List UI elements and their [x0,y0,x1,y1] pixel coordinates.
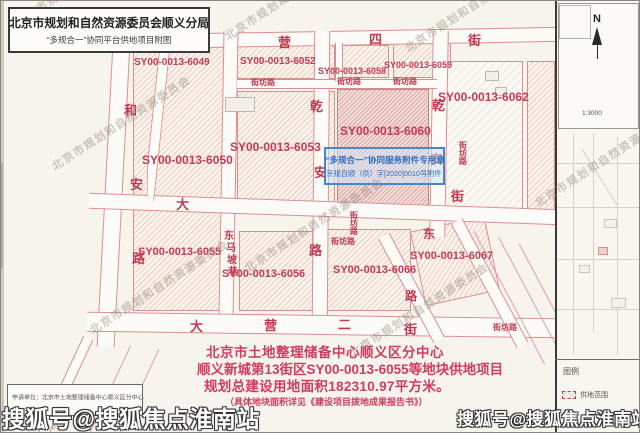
parcel-label: SY00-0013-6052 [240,57,316,67]
inset-line [557,259,640,260]
street-name-char: 营 [264,319,277,332]
map-image-root: 北京市规划和自然资源委员会顺义分局 “多规合一”协同平台供地项目附图 “多规合一… [0,0,640,433]
parcel-label: SY00-0013-6050 [142,154,233,166]
road-label: 街坊路 [458,141,466,165]
street-name-char: 大 [190,320,203,333]
north-arrow-icon [592,27,602,45]
street-name-char: 路 [309,244,322,257]
parcel-label: SY00-0013-6056 [222,269,305,280]
parcel-label: SY00-0013-6066 [333,265,416,276]
inset-box [611,298,626,308]
map-subtitle: “多规合一”协同平台供地项目附图 [47,34,172,46]
street-name-char: 坡 [227,256,237,266]
notes-line2: 顺义新城第13街区SY00-0013-6055等地块供地项目 [197,363,503,377]
parcel [437,61,523,213]
parcel-label: SY00-0013-6059 [384,61,452,70]
legend-divider [555,359,640,360]
building [225,97,255,112]
sohu-watermark-right: 搜狐号@搜狐焦点淮南站 [457,405,640,430]
street-name-char: 东 [423,228,435,240]
legend-supply-area-symbol [562,391,576,399]
street-name-char: 二 [338,318,351,331]
street-name-char: 四 [369,33,382,46]
scale-text: 1:3000 [582,110,602,117]
binding-edge-mark [1,163,3,268]
street-road [87,312,557,339]
parcel-label: SY00-0013-6062 [438,91,529,103]
street-name-char: 乾 [310,100,323,113]
north-label: N [593,13,601,25]
notes-line3: 规划总建设用地面积182310.97平方米。 [204,380,450,394]
legend-item-label: 供地范围 [580,390,608,400]
road-label: 街坊路 [337,78,361,86]
north-arrow-stem [597,45,598,59]
map-title: 北京市规划和自然资源委员会顺义分局 [9,14,209,31]
street-name-char: 安 [130,178,143,191]
notes-line1: 北京市土地整理储备中心顺义区分中心 [206,346,444,360]
street-name-char: 街 [468,34,481,47]
compass-inner-box [559,5,591,39]
title-box: 北京市规划和自然资源委员会顺义分局 “多规合一”协同平台供地项目附图 [8,7,210,53]
street-name-char: 街 [451,190,464,203]
inset-box [604,219,617,228]
road-label: 街坊路 [251,79,275,87]
parcel-label: SY00-0013-6060 [340,125,431,137]
stamp-line2: 京规自顺（供）字[2020]0010号附件 [327,169,442,179]
inset-line [573,133,574,355]
inset-line [557,309,640,310]
inset-line [617,137,618,355]
approval-stamp: “多规合一”协同服务附件专用章 京规自顺（供）字[2020]0010号附件 [324,147,445,185]
legend-title: 图例 [563,366,579,377]
street-name-char: 路 [405,290,417,302]
street-name-char: 大 [176,198,189,211]
street-name-char: 营 [278,36,291,49]
road-label: 街坊路 [393,78,417,86]
parcel-label: SY00-0013-6053 [230,141,321,153]
sohu-watermark-left: 搜狐号@搜狐焦点淮南站 [2,400,260,433]
stamp-line1: “多规合一”协同服务附件专用章 [325,153,445,165]
inset-line [557,207,640,208]
building [485,71,499,81]
parcel-label: SY00-0013-6058 [318,67,386,76]
parcel-label: SY00-0013-6049 [134,58,210,68]
inset-box [579,265,590,273]
road-label: 街坊路 [349,211,357,235]
road-label: 街坊路 [493,324,517,332]
inset-highlight [598,247,608,255]
road-label: 街坊路 [331,238,355,246]
